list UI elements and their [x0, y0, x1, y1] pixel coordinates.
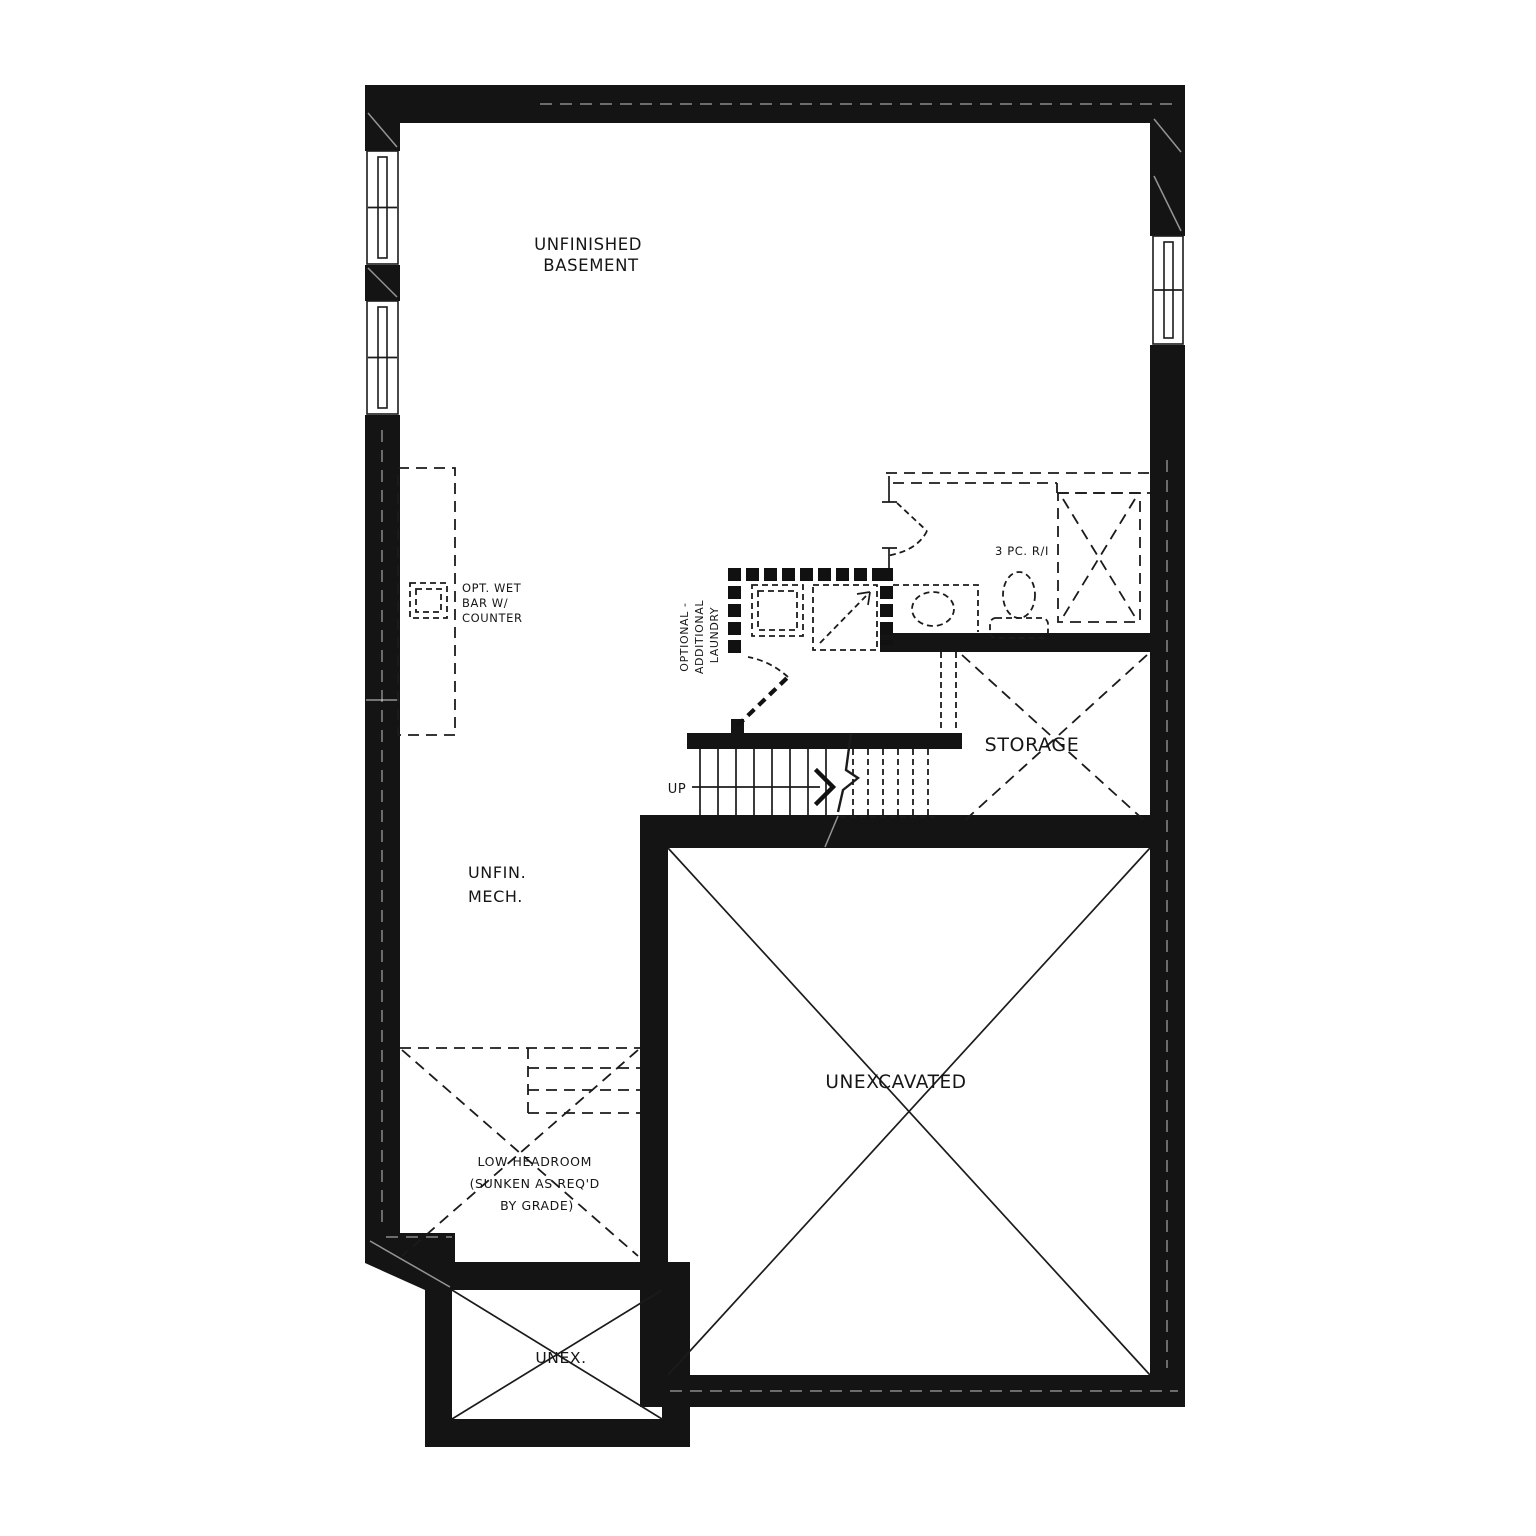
label-low-headroom: LOW HEADROOM (SUNKEN AS REQ'D BY GRADE) — [470, 1154, 605, 1213]
bath-door-swing-arc — [886, 531, 927, 556]
washer-icon — [752, 585, 803, 636]
stair-treads-solid — [700, 749, 826, 815]
wall-bath-storage-divider — [880, 633, 1155, 652]
wet-bar-sink-icon — [416, 589, 441, 612]
windows — [367, 151, 1183, 414]
window-icon — [367, 151, 398, 264]
low-headroom-area — [400, 1048, 640, 1256]
stair-treads-dashed — [853, 749, 928, 817]
toilet-icon — [1003, 572, 1035, 618]
laundry-door-swing-arc — [748, 657, 788, 677]
svg-text:OPTIONAL - ADDITIONAL: OPTIONAL - ADDITIONAL LAUNDRY — [678, 596, 721, 674]
label-unfinished-basement: UNFINISHED BASEMENT — [534, 235, 648, 275]
basement-floor-plan: UNFINISHED BASEMENT OPT. WET BAR W/ COUN… — [0, 0, 1536, 1536]
wall-unexcavated-top — [640, 815, 1185, 848]
label-storage: STORAGE — [985, 734, 1080, 756]
label-unexcavated: UNEXCAVATED — [825, 1072, 966, 1093]
label-up: UP — [668, 782, 687, 797]
label-unfin-mech: UNFIN. MECH. — [468, 863, 532, 906]
label-optional-laundry: OPTIONAL - ADDITIONAL LAUNDRY — [678, 596, 721, 674]
wall-unex-box-bottom — [425, 1419, 690, 1447]
sink-icon — [912, 592, 954, 626]
floor-plan-sheet: UNFINISHED BASEMENT OPT. WET BAR W/ COUN… — [0, 0, 1536, 1536]
exterior-walls — [365, 85, 1185, 1447]
window-icon — [1153, 236, 1183, 344]
shower-x-mark — [1063, 499, 1135, 617]
wall-left-corner — [365, 85, 400, 151]
label-bath-rough-in: 3 PC. R/I — [995, 544, 1049, 558]
low-headroom-x-mark — [402, 1050, 638, 1256]
window-icon — [367, 301, 398, 414]
unexcavated-area — [668, 848, 1150, 1375]
label-wet-bar: OPT. WET BAR W/ COUNTER — [462, 581, 526, 625]
optional-laundry-room — [728, 568, 893, 726]
stair-rail-wall — [687, 733, 962, 749]
wall-unex-box-top — [425, 1262, 690, 1290]
label-unex: UNEX. — [535, 1349, 586, 1367]
door-jamb-mark — [882, 476, 897, 502]
unexcavated-x-mark — [668, 848, 1150, 1375]
wet-bar-counter — [398, 468, 455, 735]
washer-icon — [758, 591, 797, 630]
laundry-door-leaf — [737, 677, 788, 726]
bath-bulkhead-line — [893, 483, 1150, 493]
bath-door-leaf — [897, 503, 927, 531]
door-jamb-mark — [882, 548, 897, 568]
shower-icon — [1058, 493, 1140, 622]
dryer-vent-arrow — [820, 596, 866, 643]
wall-right-top — [1150, 85, 1185, 236]
stair-upper-flight-dashed — [941, 652, 956, 731]
sunken-steps-dashed — [528, 1048, 640, 1113]
